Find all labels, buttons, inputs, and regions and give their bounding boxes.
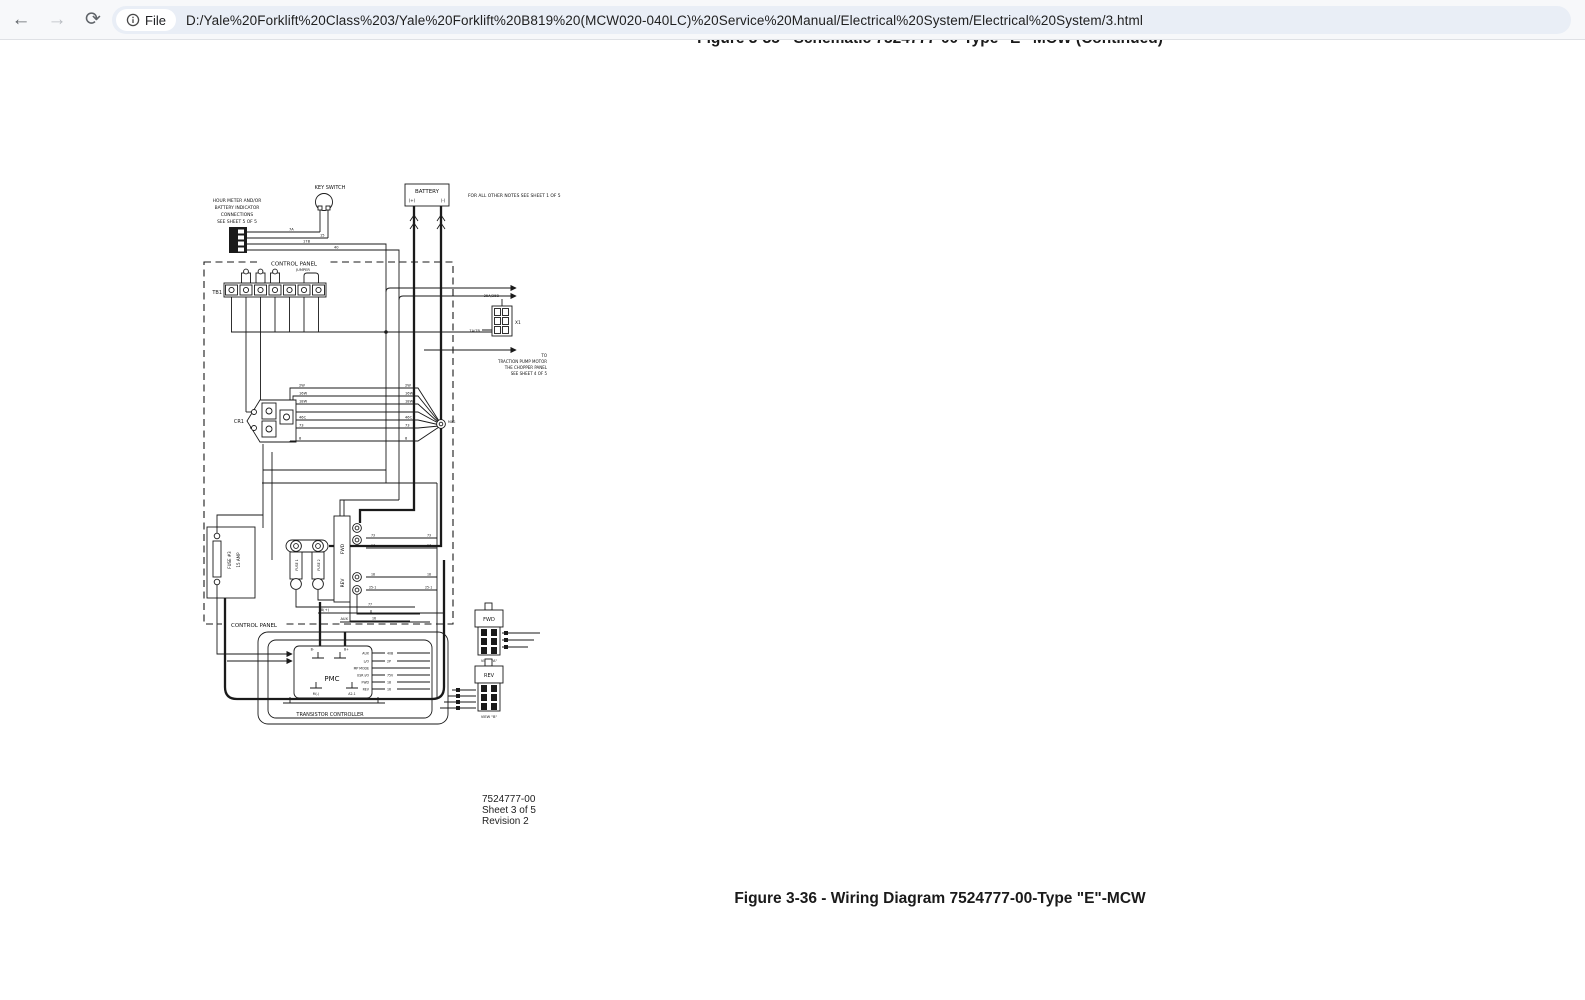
svg-text:FWD: FWD (362, 681, 370, 685)
traction-note: TO TRACTION PUMP MOTOR THE CHOPPER PANEL… (497, 353, 548, 376)
svg-text:7A/7B: 7A/7B (469, 329, 480, 333)
x1-connector: 25A/25B 7A/7B X1 (469, 294, 521, 336)
svg-text:B(+): B(+) (321, 608, 330, 612)
url-text[interactable]: D:/Yale%20Forklift%20Class%203/Yale%20Fo… (186, 13, 1143, 28)
svg-text:8: 8 (299, 437, 302, 441)
svg-text:HOUR METER AND/OR: HOUR METER AND/OR (213, 198, 262, 204)
svg-text:FUSE 1: FUSE 1 (295, 559, 299, 570)
svg-text:M(-): M(-) (313, 692, 319, 696)
svg-text:14: 14 (427, 544, 431, 548)
svg-text:BATTERY INDICATOR: BATTERY INDICATOR (215, 205, 260, 211)
svg-text:CONTROL PANEL: CONTROL PANEL (271, 262, 318, 268)
info-icon (126, 13, 140, 27)
svg-text:(+): (+) (409, 198, 416, 203)
svg-text:CR1: CR1 (234, 419, 244, 425)
svg-text:TO: TO (540, 353, 547, 358)
battery: BATTERY (+) (-) (405, 184, 449, 229)
svg-text:46C: 46C (405, 416, 413, 420)
svg-text:REV: REV (363, 688, 370, 692)
contactor-assembly: FWD REV 73 14 18 25-1 73 14 18 25-1 77 8… (334, 500, 437, 621)
svg-text:25A/25B: 25A/25B (484, 294, 500, 298)
svg-text:REV: REV (340, 579, 346, 588)
svg-text:8: 8 (405, 437, 408, 441)
svg-text:73: 73 (405, 424, 410, 428)
svg-text:L/O: L/O (364, 660, 370, 664)
svg-text:THE CHOPPER PANEL: THE CHOPPER PANEL (504, 365, 548, 370)
junction-dot (384, 330, 388, 334)
svg-text:(-): (-) (441, 198, 446, 203)
svg-text:14: 14 (371, 544, 375, 548)
hour-meter-connector (229, 227, 247, 253)
svg-text:TB1: TB1 (211, 290, 222, 296)
tb1-terminal-strip: TB1 JUMPER (211, 268, 326, 412)
svg-text:FUSE #3: FUSE #3 (227, 551, 232, 569)
svg-text:FUSE 2: FUSE 2 (317, 559, 321, 570)
svg-text:73: 73 (371, 534, 375, 538)
svg-text:15: 15 (320, 234, 325, 238)
svg-text:46C: 46C (299, 416, 307, 420)
key-switch: KEY SWITCH (315, 185, 346, 238)
svg-text:8: 8 (370, 610, 372, 614)
hour-meter-note: HOUR METER AND/OR BATTERY INDICATOR CONN… (213, 198, 262, 225)
svg-text:AUX: AUX (362, 652, 370, 656)
svg-text:40: 40 (334, 246, 339, 250)
svg-text:73: 73 (299, 424, 304, 428)
wiring-diagram: HOUR METER AND/OR BATTERY INDICATOR CONN… (195, 175, 565, 735)
svg-text:FWD: FWD (340, 543, 346, 554)
svg-text:16: 16 (372, 617, 376, 621)
svg-text:25-1: 25-1 (369, 586, 376, 590)
fuse-3: FUSE #3 15 AMP (207, 527, 255, 598)
figure-caption: Figure 3-36 - Wiring Diagram 7524777-00-… (640, 890, 1240, 908)
svg-text:16W: 16W (299, 392, 308, 396)
sheet-number: Sheet 3 of 5 (482, 805, 536, 816)
svg-text:18W: 18W (299, 400, 308, 404)
svg-text:KEY SWITCH: KEY SWITCH (315, 185, 346, 191)
svg-text:MP MODE: MP MODE (354, 667, 369, 671)
svg-text:2P: 2P (387, 660, 391, 664)
svg-text:JUMPER: JUMPER (295, 268, 310, 272)
svg-text:77: 77 (368, 603, 372, 607)
svg-text:CONTROL PANEL: CONTROL PANEL (231, 623, 278, 629)
svg-text:SEE SHEET 4 OF 5: SEE SHEET 4 OF 5 (511, 371, 548, 376)
svg-text:TRANSISTOR CONTROLLER: TRANSISTOR CONTROLLER (295, 712, 364, 718)
clipped-figure-caption: Figure 3-35 - Schematic 7524777-00-Type … (620, 40, 1240, 47)
svg-text:SEE SHEET 5 OF 5: SEE SHEET 5 OF 5 (217, 219, 257, 225)
svg-text:40B: 40B (387, 652, 393, 656)
svg-text:CONNECTIONS: CONNECTIONS (221, 212, 254, 218)
svg-text:16W: 16W (405, 392, 414, 396)
revision: Revision 2 (482, 816, 536, 827)
cr1-relay: CR1 MAG 2W 16W 18W 46C 73 8 2W (234, 384, 456, 443)
wire-labels: 7A 15 17B 40 (289, 228, 339, 250)
power-fuses: FUSE 1 FUSE 2 (286, 540, 328, 589)
svg-text:18: 18 (387, 681, 391, 685)
back-button[interactable]: ← (6, 5, 36, 35)
svg-text:TRACTION PUMP MOTOR: TRACTION PUMP MOTOR (497, 359, 547, 364)
svg-text:PMC: PMC (324, 675, 339, 683)
svg-text:FWD: FWD (483, 617, 495, 623)
svg-text:X1: X1 (515, 320, 521, 326)
svg-text:2W: 2W (299, 384, 305, 388)
other-notes: FOR ALL OTHER NOTES SEE SHEET 1 OF 5 (468, 193, 561, 199)
file-chip[interactable]: File (116, 9, 176, 31)
svg-text:7A: 7A (289, 228, 294, 232)
svg-text:MAG: MAG (448, 420, 456, 424)
part-number: 7524777-00 (482, 794, 536, 805)
svg-text:VIEW "B": VIEW "B" (481, 715, 498, 719)
svg-text:16: 16 (387, 688, 391, 692)
file-chip-label: File (145, 13, 166, 28)
svg-text:18W: 18W (405, 400, 414, 404)
svg-text:REV: REV (484, 673, 495, 679)
svg-text:18: 18 (371, 573, 375, 577)
svg-text:17B: 17B (303, 240, 311, 244)
sheet-info: 7524777-00 Sheet 3 of 5 Revision 2 (482, 794, 536, 827)
svg-text:BATTERY: BATTERY (415, 189, 440, 195)
svg-text:A2-1: A2-1 (348, 692, 355, 696)
rev-aux-connector: REV VIEW "B" (440, 659, 503, 719)
url-bar[interactable]: File D:/Yale%20Forklift%20Class%203/Yale… (112, 6, 1571, 34)
svg-text:18: 18 (427, 573, 431, 577)
fwd-aux-connector: FWD VIEW "A" (475, 603, 540, 663)
browser-toolbar: ← → ⟳ File D:/Yale%20Forklift%20Class%20… (0, 0, 1585, 40)
svg-text:15 AMP: 15 AMP (236, 552, 241, 568)
svg-text:B+: B+ (344, 648, 349, 652)
svg-text:2W: 2W (405, 384, 411, 388)
page-content: Figure 3-35 - Schematic 7524777-00-Type … (0, 40, 1585, 1000)
forward-button[interactable]: → (42, 5, 72, 35)
control-panel-boundary: CONTROL PANEL CONTROL PANEL (204, 257, 453, 629)
svg-text:B-: B- (311, 648, 314, 652)
reload-button[interactable]: ⟳ (78, 5, 108, 35)
svg-text:73: 73 (427, 534, 431, 538)
svg-text:USR I/O: USR I/O (357, 674, 370, 678)
svg-text:25-1: 25-1 (425, 586, 432, 590)
svg-text:75V: 75V (387, 674, 394, 678)
svg-text:AUX: AUX (340, 617, 348, 621)
